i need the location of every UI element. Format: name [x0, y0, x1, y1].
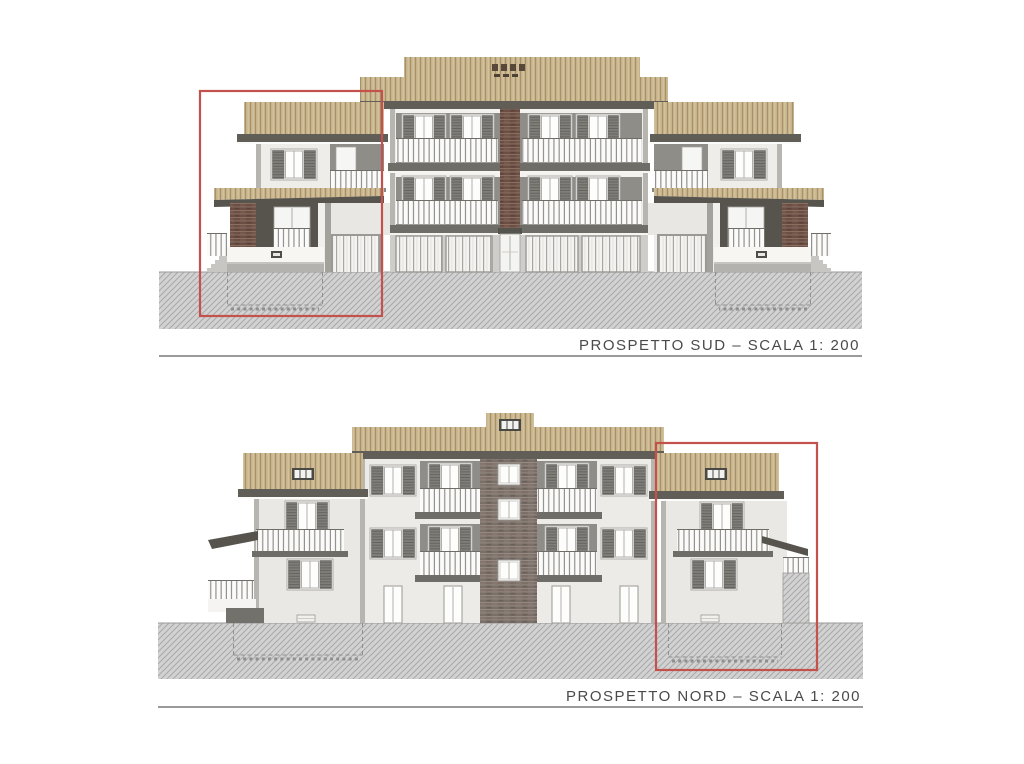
- balcony-railing: [396, 139, 498, 162]
- balcony-slab: [252, 551, 348, 557]
- north-elevation-label: PROSPETTO NORD – SCALA 1: 200: [566, 688, 861, 705]
- garage-door: [582, 236, 640, 272]
- balcony-railing: [677, 530, 769, 551]
- tall-window: [620, 586, 638, 623]
- upper-window: [271, 149, 317, 180]
- side-stairs: [207, 233, 227, 272]
- balcony-railing: [522, 201, 642, 224]
- elevations-svg: PROSPETTO SUD – SCALA 1: 200: [0, 0, 1024, 764]
- unit-roof-eave: [238, 489, 368, 497]
- balcony-railing: [537, 489, 597, 512]
- garage-door: [396, 236, 442, 272]
- north-elevation: PROSPETTO NORD – SCALA 1: 200: [158, 413, 863, 707]
- attic-window: [705, 468, 727, 480]
- window: [370, 528, 416, 559]
- south-central-block: [360, 57, 668, 272]
- roof-eave: [360, 101, 668, 109]
- tall-window: [444, 586, 462, 623]
- balcony-railing: [420, 552, 480, 575]
- upper-loggia: [328, 144, 386, 192]
- tall-window: [552, 586, 570, 623]
- porch: [230, 203, 328, 249]
- central-brick-pier: [498, 109, 522, 272]
- lower-window: [691, 559, 737, 590]
- balcony-slab: [673, 551, 773, 557]
- brick-pier: [230, 203, 256, 247]
- north-brick-strip: [480, 459, 537, 623]
- roof-lower-tier: [360, 77, 668, 101]
- basement-vent: [701, 615, 719, 622]
- north-central-block: [352, 413, 664, 623]
- balcony-railing: [396, 201, 498, 224]
- window: [370, 465, 416, 496]
- attic-window: [292, 468, 314, 480]
- basement-vent: [297, 615, 315, 622]
- window: [601, 528, 647, 559]
- garage-door: [526, 236, 578, 272]
- terrace-parapet: [225, 247, 324, 272]
- stair-window: [498, 499, 520, 520]
- tall-window: [384, 586, 402, 623]
- stair-window: [498, 464, 520, 485]
- stair-window: [498, 560, 520, 581]
- south-elevation-label: PROSPETTO SUD – SCALA 1: 200: [579, 337, 860, 354]
- unit-roof: [244, 102, 384, 135]
- balcony-railing: [420, 489, 480, 512]
- north-caption: PROSPETTO NORD – SCALA 1: 200: [158, 688, 863, 707]
- window: [601, 465, 647, 496]
- balcony-railing: [537, 552, 597, 575]
- drawing-sheet: PROSPETTO SUD – SCALA 1: 200: [0, 0, 1024, 764]
- unit-roof-eave: [649, 491, 784, 499]
- unit-garage-door: [333, 236, 379, 272]
- south-caption: PROSPETTO SUD – SCALA 1: 200: [159, 337, 862, 356]
- balcony-railing: [522, 139, 642, 162]
- attic-window: [499, 419, 521, 431]
- lower-window: [287, 559, 333, 590]
- south-ground: [159, 272, 862, 329]
- roof-eave: [352, 451, 664, 459]
- unit-roof-eave: [237, 134, 388, 142]
- balcony-railing: [256, 530, 344, 551]
- south-elevation: PROSPETTO SUD – SCALA 1: 200: [159, 57, 862, 356]
- garage-door: [446, 236, 492, 272]
